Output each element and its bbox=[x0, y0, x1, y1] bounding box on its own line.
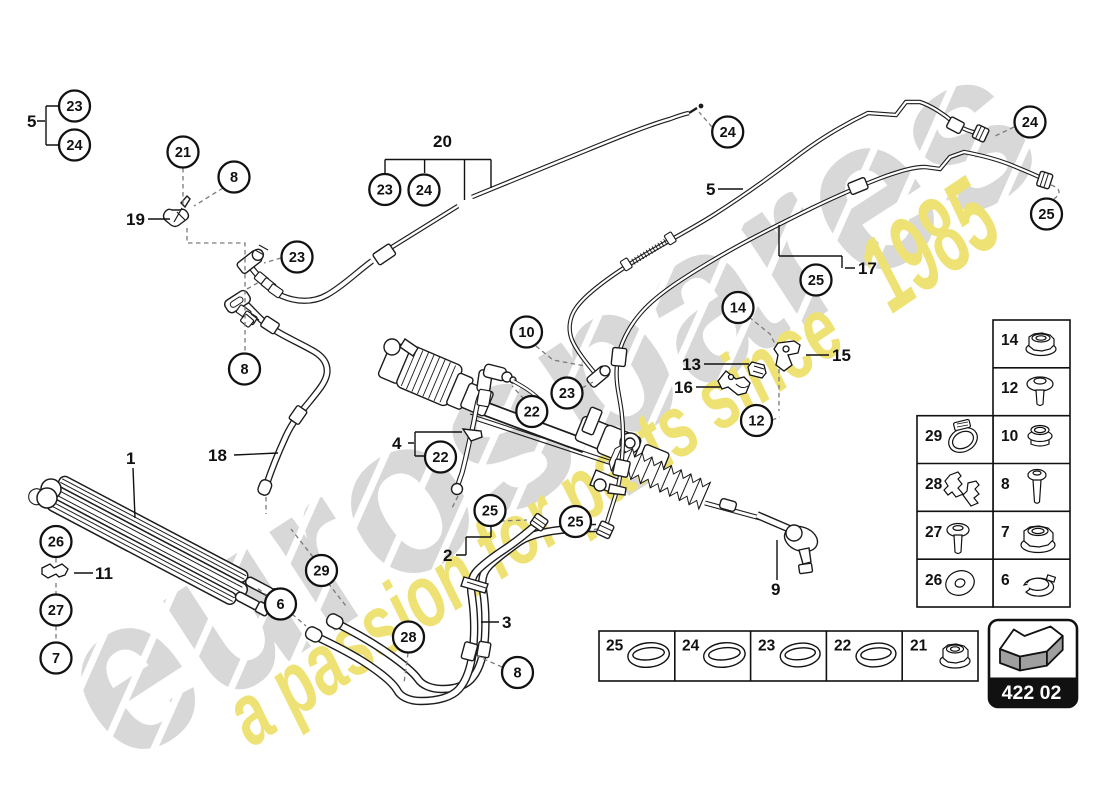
svg-text:6: 6 bbox=[276, 597, 284, 613]
svg-text:8: 8 bbox=[513, 666, 521, 682]
svg-text:26: 26 bbox=[925, 572, 943, 589]
svg-text:7: 7 bbox=[1001, 524, 1010, 541]
svg-text:24: 24 bbox=[720, 125, 736, 141]
svg-text:25: 25 bbox=[1038, 207, 1054, 223]
svg-text:22: 22 bbox=[432, 450, 448, 466]
svg-text:8: 8 bbox=[230, 170, 238, 186]
svg-text:25: 25 bbox=[606, 638, 624, 655]
svg-text:422 02: 422 02 bbox=[1002, 682, 1062, 704]
svg-text:18: 18 bbox=[208, 446, 227, 465]
svg-text:24: 24 bbox=[682, 638, 700, 655]
svg-text:9: 9 bbox=[771, 580, 780, 599]
svg-text:10: 10 bbox=[518, 325, 534, 341]
svg-text:23: 23 bbox=[289, 250, 305, 266]
svg-text:22: 22 bbox=[834, 638, 851, 655]
svg-text:10: 10 bbox=[1001, 428, 1018, 445]
svg-text:23: 23 bbox=[758, 638, 776, 655]
svg-text:7: 7 bbox=[52, 651, 60, 667]
svg-text:13: 13 bbox=[682, 355, 701, 374]
svg-text:17: 17 bbox=[858, 259, 877, 278]
svg-text:24: 24 bbox=[1022, 115, 1038, 131]
svg-text:25: 25 bbox=[482, 504, 498, 520]
svg-text:27: 27 bbox=[925, 524, 942, 541]
svg-text:6: 6 bbox=[1001, 572, 1010, 589]
svg-text:16: 16 bbox=[674, 378, 693, 397]
svg-text:20: 20 bbox=[433, 132, 452, 151]
svg-text:28: 28 bbox=[400, 630, 416, 646]
svg-text:2: 2 bbox=[443, 546, 452, 565]
svg-text:23: 23 bbox=[377, 183, 393, 199]
svg-text:27: 27 bbox=[48, 603, 64, 619]
svg-text:14: 14 bbox=[1001, 332, 1019, 349]
svg-text:15: 15 bbox=[832, 346, 851, 365]
svg-text:22: 22 bbox=[524, 405, 540, 421]
svg-text:23: 23 bbox=[559, 386, 575, 402]
svg-text:24: 24 bbox=[416, 183, 432, 199]
svg-text:5: 5 bbox=[706, 180, 715, 199]
svg-text:29: 29 bbox=[925, 428, 943, 445]
svg-text:26: 26 bbox=[48, 535, 64, 551]
svg-text:21: 21 bbox=[910, 638, 928, 655]
svg-text:21: 21 bbox=[175, 145, 191, 161]
svg-text:8: 8 bbox=[240, 362, 248, 378]
svg-text:23: 23 bbox=[66, 99, 82, 115]
svg-text:25: 25 bbox=[567, 515, 583, 531]
svg-text:5: 5 bbox=[27, 112, 36, 131]
svg-text:14: 14 bbox=[730, 301, 746, 317]
svg-text:8: 8 bbox=[1001, 476, 1010, 493]
svg-text:25: 25 bbox=[808, 273, 824, 289]
svg-text:19: 19 bbox=[126, 210, 145, 229]
svg-text:11: 11 bbox=[95, 564, 113, 583]
svg-text:28: 28 bbox=[925, 476, 943, 493]
svg-text:12: 12 bbox=[748, 414, 764, 430]
svg-text:4: 4 bbox=[392, 434, 402, 453]
svg-text:12: 12 bbox=[1001, 380, 1018, 397]
svg-text:3: 3 bbox=[502, 613, 511, 632]
svg-text:29: 29 bbox=[313, 564, 329, 580]
svg-text:24: 24 bbox=[66, 138, 82, 154]
svg-text:1: 1 bbox=[126, 449, 135, 468]
